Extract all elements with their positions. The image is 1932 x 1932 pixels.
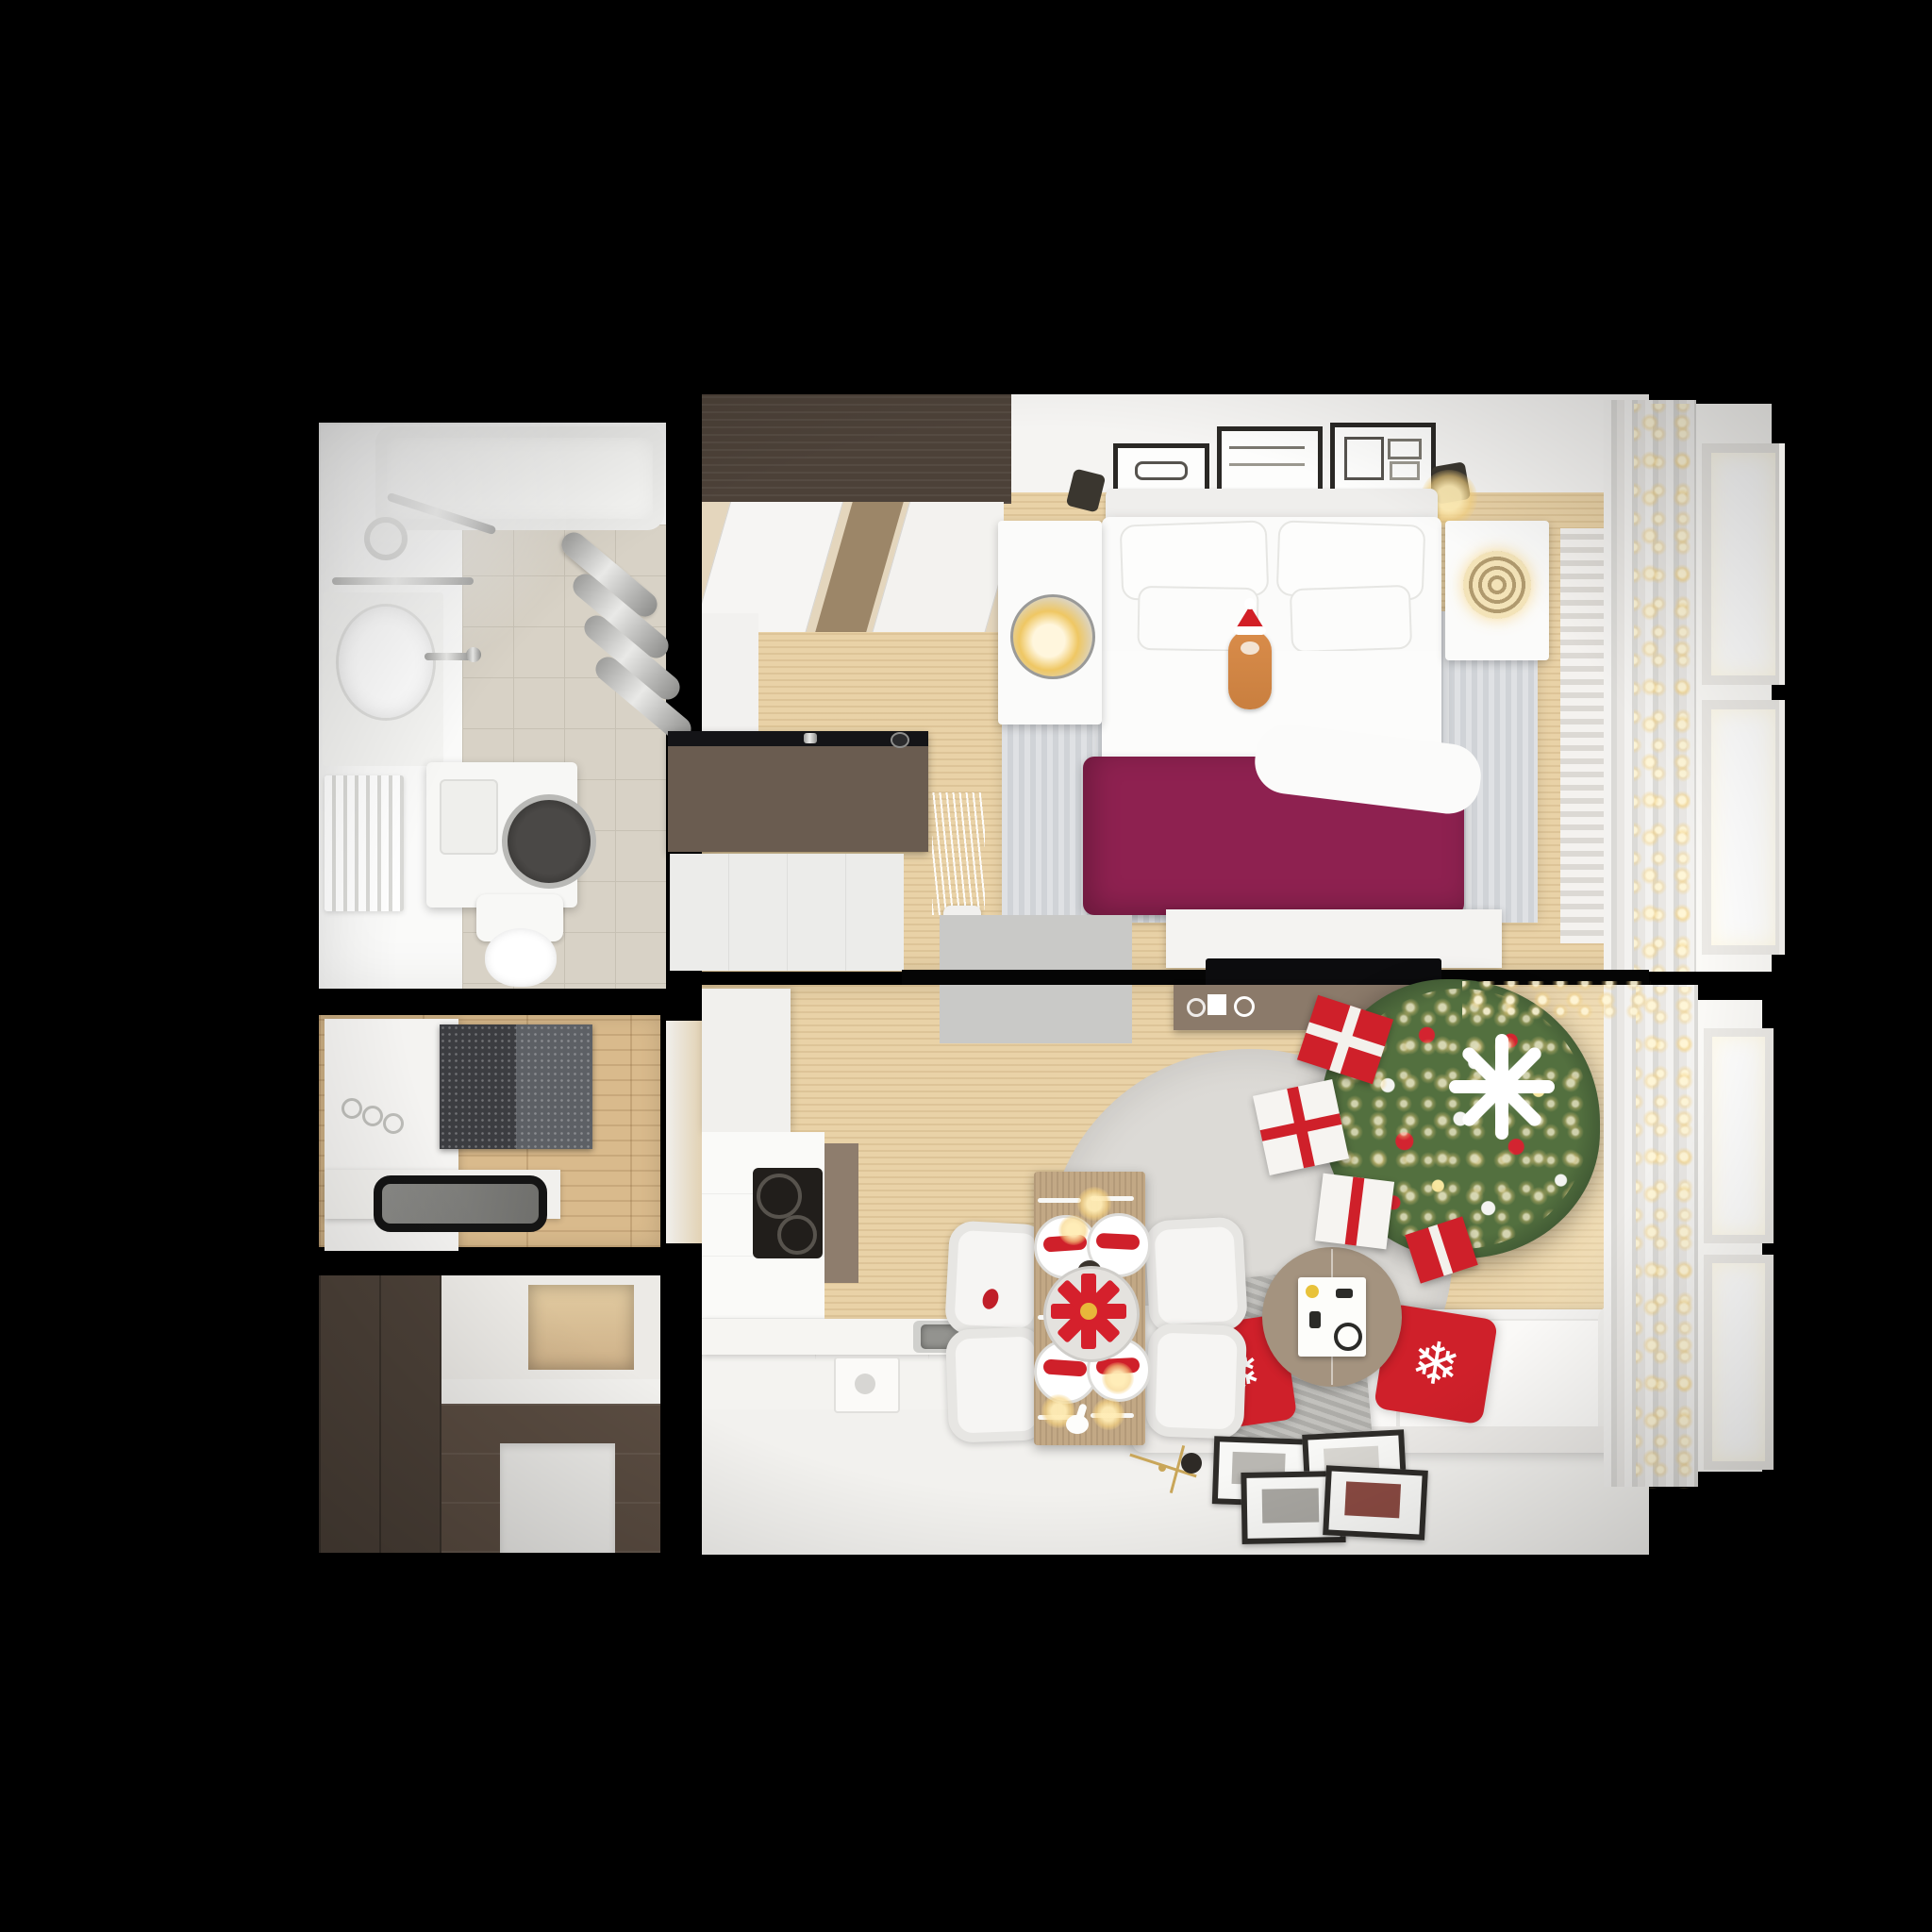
globe-lamp: [1010, 594, 1095, 679]
poinsettia-centerpiece: [1049, 1272, 1128, 1351]
dishwasher-knob-icon: [855, 1374, 875, 1394]
washing-machine-door-icon: [502, 794, 596, 889]
headboard: [1106, 489, 1438, 521]
desk-knob-icon: [804, 733, 817, 743]
brand-logo-icon: [1234, 996, 1255, 1017]
light-switch-icon: [362, 1106, 383, 1126]
candle: [1092, 1398, 1124, 1430]
window: [1702, 443, 1785, 685]
kitchen-tall-cabinet: [702, 989, 791, 1132]
window-radiator: [1560, 528, 1604, 943]
wall-clock-weight: [1181, 1453, 1202, 1474]
cooktop-burner-icon: [777, 1215, 817, 1255]
red-napkin: [1096, 1233, 1141, 1250]
wardrobe-top: [702, 394, 1011, 504]
desk-knob-icon: [891, 732, 909, 748]
entry-niche: [528, 1285, 634, 1370]
candle: [1077, 1187, 1111, 1221]
cutlery-icon: [1038, 1198, 1081, 1203]
dining-chair: [945, 1326, 1047, 1443]
cooktop-burner-icon: [757, 1174, 802, 1219]
cat-with-santa-hat: [1228, 630, 1272, 709]
wall-frame-medium: [1217, 426, 1323, 494]
candle: [1058, 1215, 1089, 1245]
mirror-tray: [374, 1175, 547, 1232]
window: [1704, 1028, 1774, 1243]
swan-decor: [1064, 1404, 1092, 1436]
bedroom-left-wall-panel: [702, 613, 758, 736]
tree-star-topper: [1445, 1030, 1558, 1143]
dining-chair: [1145, 1323, 1247, 1440]
wall-frame-large: [1330, 423, 1436, 494]
entry-wenge-wardrobe: [319, 1275, 441, 1553]
gift-box: [1253, 1079, 1349, 1175]
living-door-mat: [940, 985, 1132, 1043]
washer-detergent-drawer: [440, 779, 498, 855]
bedroom-desk: [668, 731, 928, 852]
cat-muzzle: [1241, 641, 1259, 655]
entry-countertop: [441, 1379, 660, 1404]
santa-hat-pom: [1244, 598, 1256, 609]
fairy-lights: [1462, 981, 1651, 1023]
wall-tv: [1206, 958, 1441, 987]
brand-logo-icon: [1207, 994, 1226, 1015]
floor-plan-render: ❄ ❄: [0, 0, 1932, 1932]
light-switch-icon: [383, 1113, 404, 1134]
fairy-lights: [1636, 987, 1694, 1489]
bedroom-door-mat: [940, 915, 1132, 970]
desk-glass-top: [668, 731, 928, 746]
window: [1704, 1255, 1774, 1470]
santa-hat-brim: [1234, 626, 1266, 635]
gift-box: [1315, 1174, 1394, 1250]
window: [1702, 700, 1785, 955]
kitchen-upper-cabinet: [824, 1143, 858, 1283]
fairy-lights: [1634, 404, 1690, 972]
toilet-bowl: [485, 928, 557, 987]
light-switch-icon: [341, 1098, 362, 1119]
dining-chair: [1144, 1216, 1248, 1334]
pampas-grass: [932, 792, 985, 915]
gift-book: [1298, 1277, 1366, 1357]
red-napkin: [1042, 1358, 1087, 1376]
heated-towel-rail: [325, 775, 404, 911]
hallway-door-opening: [666, 1021, 702, 1243]
floor-picture-frame: [1323, 1465, 1428, 1541]
bedroom-dresser: [670, 854, 904, 971]
bathroom-glow: [321, 425, 566, 689]
rattan-lamp: [1463, 551, 1531, 619]
candle: [1102, 1362, 1134, 1394]
bed-pillow: [1290, 585, 1412, 653]
glitter-doormat: [440, 1024, 592, 1149]
dining-chair: [944, 1220, 1048, 1338]
brand-logo-icon: [1187, 998, 1206, 1017]
entry-appliance: [500, 1443, 615, 1553]
snowflake-icon: ❄: [1407, 1331, 1464, 1396]
wall-clock-pivot: [1158, 1464, 1166, 1472]
